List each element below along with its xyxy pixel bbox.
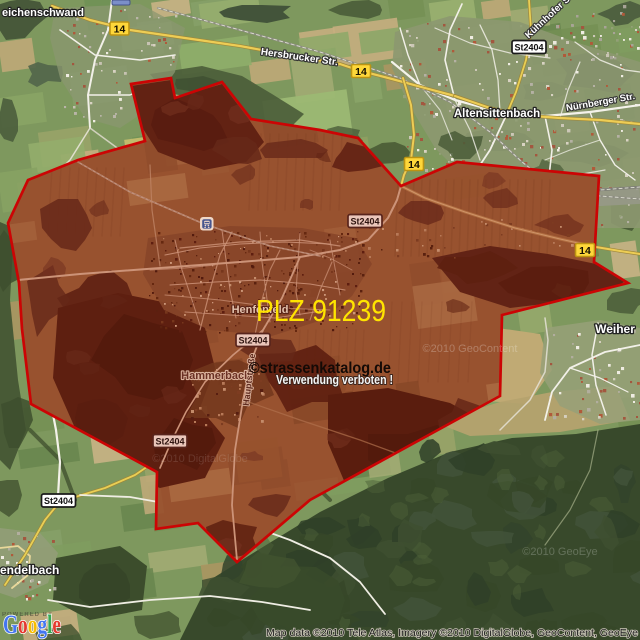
svg-text:14: 14 <box>579 245 591 257</box>
svg-text:Altensittenbach: Altensittenbach <box>454 108 540 120</box>
svg-text:©2010 GeoEye: ©2010 GeoEye <box>522 546 597 558</box>
svg-text:Hammerbach: Hammerbach <box>181 370 251 382</box>
svg-text:©2010 DigitalGlobe: ©2010 DigitalGlobe <box>152 453 248 465</box>
svg-text:14: 14 <box>355 66 367 78</box>
svg-text:St2404: St2404 <box>514 43 543 53</box>
svg-text:St2404: St2404 <box>350 217 379 227</box>
svg-text:Google: Google <box>3 610 61 639</box>
svg-text:14: 14 <box>114 24 126 36</box>
svg-text:Weiher: Weiher <box>595 322 635 336</box>
svg-text:endelbach: endelbach <box>0 563 59 577</box>
svg-text:Map data ©2010 Tele Atlas, Ima: Map data ©2010 Tele Atlas, Imagery ©2010… <box>266 628 638 639</box>
svg-text:St2404: St2404 <box>155 437 184 447</box>
svg-text:St2404: St2404 <box>238 336 267 346</box>
svg-text:eichenschwand: eichenschwand <box>2 7 84 19</box>
svg-text:©2010 GeoContent: ©2010 GeoContent <box>423 343 518 355</box>
svg-text:14: 14 <box>408 159 420 171</box>
svg-text:St2404: St2404 <box>44 496 73 506</box>
svg-text:Verwendung verboten !: Verwendung verboten ! <box>276 372 393 387</box>
svg-text:PLZ 91239: PLZ 91239 <box>256 293 386 328</box>
